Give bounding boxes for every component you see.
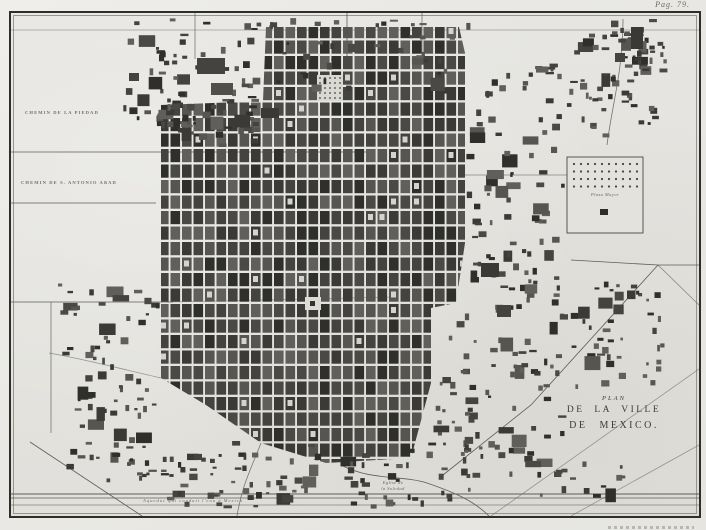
map-title-line2: DE LA VILLE [531,405,697,415]
label-aqueduct-bottom: Aqueduc qui conduit l'eau à Mexico [143,498,333,504]
map-canvas [11,13,699,516]
map-title-line1: PLAN [531,395,697,402]
label-plaza-right: Plaza Mayor [567,192,643,198]
label-church-line2: la Soledad [371,486,415,492]
map-sheet: Pag. 79. [0,0,706,530]
engraver-imprint-smudge [608,526,694,529]
page-number: Pag. 79. [655,0,690,9]
label-road-upper-left: CHEMIN DE LA PIEDAD [25,110,121,116]
label-church-bottom: Eglise de la Soledad [371,480,415,491]
map-title-block: PLAN DE LA VILLE DE MEXICO. [531,395,697,431]
map-frame: CHEMIN DE LA PIEDAD CHEMIN DE S. ANTONIO… [9,11,701,518]
label-road-lower-left: CHEMIN DE S. ANTONIO ABAD [21,180,141,186]
city-grid [159,25,468,472]
map-title-line3: DE MEXICO. [531,420,697,431]
